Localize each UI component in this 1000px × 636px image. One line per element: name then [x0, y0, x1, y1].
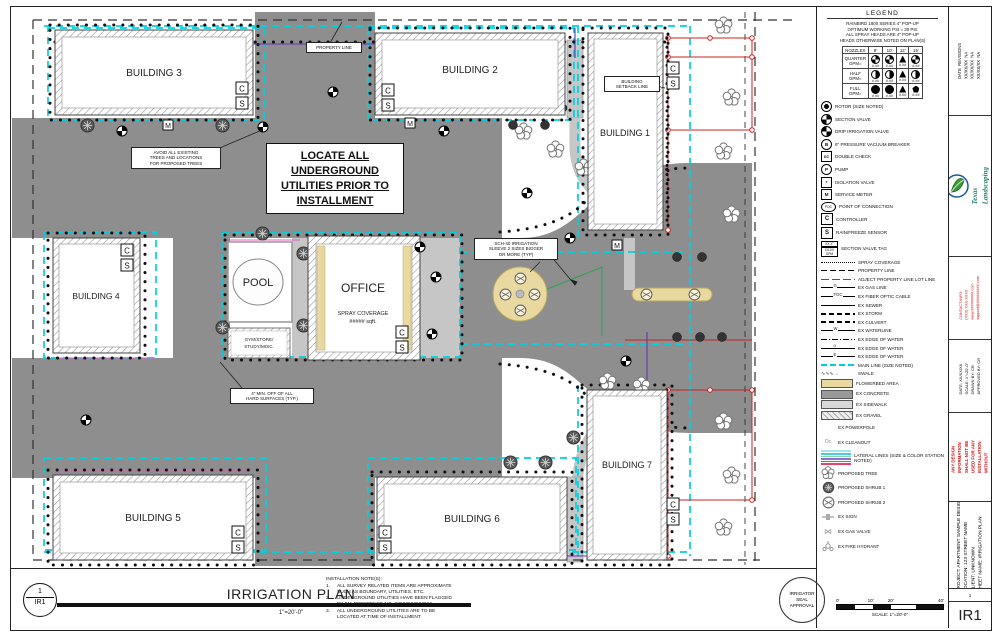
lateral-lines-icon: [821, 450, 851, 465]
legend-misc-row: LATERAL LINES (SIZE & COLOR STATION NOTE…: [821, 450, 944, 465]
legend-area-row: EX CONCRETE: [821, 390, 944, 399]
legend-misc-row: PROPOSED SHRUB 1: [821, 481, 944, 494]
legend-row: SECTION VALVE: [821, 114, 944, 125]
shrub2-icon: [821, 496, 835, 509]
vacuum-breaker-icon: B: [821, 139, 832, 150]
shrub1-icon: [821, 481, 835, 494]
triangle-nozzle-icon: [899, 56, 906, 63]
legend-line-row: GEX GAS LINE: [821, 284, 944, 291]
locate-utilities-note: LOCATE ALLUNDERGROUND UTILITIES PRIOR TO…: [266, 143, 404, 214]
title-block-strip: DATE REVISIONS XX/XX/XX NA XX/XX/XX NA X…: [948, 7, 991, 628]
half-nozzle-icon: [885, 70, 894, 79]
quarter-nozzle-icon: [885, 55, 894, 64]
edge-of-water-sample: [821, 337, 855, 342]
sidewalk-swatch: [821, 400, 853, 409]
legend-misc-row: ⋈EX GAS VALVE: [821, 525, 944, 538]
foc-line-sample: FOC: [821, 294, 855, 299]
nozzle-row-half: HALFGPM= #.## #.## #.## #.##: [842, 69, 923, 84]
section-valve-icon: [821, 114, 832, 125]
half-nozzle-icon: [871, 70, 880, 79]
legend-area-row: FLOWERBED AREA: [821, 379, 944, 388]
legend-line-row: SPRAY COVERAGE: [821, 259, 944, 266]
legend-line-row: EX SEWER: [821, 302, 944, 309]
gravel-swatch: [821, 411, 853, 420]
storm-line-sample: [821, 311, 855, 316]
legend-line-row: WEX WATERLINE: [821, 327, 944, 334]
pump-icon: P: [821, 164, 832, 175]
legend-line-row: oEX EDGE OF WATER: [821, 345, 944, 352]
legend-header: RAINBIRD 1800 SERIES 4" POP-UPOPTIMUM WO…: [821, 21, 944, 43]
sheet-small-num: 1: [949, 589, 991, 602]
legend-row: POCPOINT OF CONNECTION: [821, 202, 944, 212]
sheet-number: IR1: [949, 602, 991, 628]
proposed-tree-icon: [821, 467, 835, 480]
company-logo: [949, 173, 970, 199]
legend-line-row: EX EDGE OF WATER: [821, 336, 944, 343]
legend-row: MSERVICE METER: [821, 189, 944, 200]
pentagon-nozzle-icon: [912, 86, 919, 93]
legend-line-row: EX STORM: [821, 310, 944, 317]
double-check-icon: DC: [821, 151, 832, 162]
avoid-trees-callout: AVOID ALL EXISTINGTREES AND LOCATIONSFOR…: [131, 147, 221, 169]
scale-bar-blocks: [836, 604, 944, 610]
poc-icon: POC: [821, 202, 836, 212]
detail-bubble: 1 IR1: [23, 583, 57, 617]
legend-row: *ISOLATION VALVE: [821, 177, 944, 188]
legend-misc-row: OcEX CLEANOUT: [821, 436, 944, 449]
legend-row: PPUMP: [821, 164, 944, 175]
edge-of-water-sample-2: o: [821, 346, 855, 351]
legend-line-row: MAIN LINE (SIZE NOTED): [821, 362, 944, 369]
property-line-sample: [821, 268, 855, 273]
legend-row: CCONTROLLER: [821, 213, 944, 225]
triangle-nozzle-icon: [899, 86, 906, 93]
legend-line-row: EX CULVERT: [821, 319, 944, 326]
triangle-nozzle-icon: [899, 71, 906, 78]
irrigator-seal: IRRIGATORSEALAPPROVAL: [779, 577, 825, 623]
concrete-swatch: [821, 390, 853, 399]
half-nozzle-icon: [911, 70, 920, 79]
disclaimer-block: PRELIMINARY: ANY DESIGN INFORMATION SHAL…: [949, 413, 991, 502]
sheet-meta-block: DATE: XX/XX/XX SCALE: 1"=20'-0" DRAWN BY…: [949, 340, 991, 413]
legend-title: LEGEND: [827, 10, 938, 19]
sewer-line-sample: [821, 303, 855, 308]
controller-icon: C: [821, 213, 833, 225]
legend-misc-row: EX POWERPOLE: [821, 421, 944, 434]
project-info-block: PROJECT: APARTMENT SAMPLE DESIGN LOCATIO…: [949, 502, 991, 589]
edge-of-water-sample-3: E: [821, 354, 855, 359]
legend-row: DCDOUBLE CHECK: [821, 151, 944, 162]
legend-misc-row: PROPOSED TREE: [821, 467, 944, 480]
cleanout-icon: Oc: [821, 436, 835, 449]
fire-hydrant-icon: [821, 540, 835, 553]
legend-line-row: ∿∿∿→SWALE: [821, 370, 944, 377]
sleeve-callout: SCH-40 IRRIGATIONSLEEVE 2 SIZES BIGGEROR…: [474, 238, 558, 260]
legend-line-row: PROPERTY LINE: [821, 267, 944, 274]
legend-row: SRAIN/FREEZE SENSOR: [821, 227, 944, 239]
waterline-sample: W: [821, 328, 855, 333]
legend-row: DRIP IRRIGATION VALVE: [821, 126, 944, 137]
flowerbed-swatch: [821, 379, 853, 388]
legend-line-row: EEX EDGE OF WATER: [821, 353, 944, 360]
nozzle-table: NOZZLES8' 10'12' 15' QUARTERGPM= #.## #.…: [842, 46, 924, 99]
drip-valve-icon: [821, 126, 832, 137]
legend-row: ROTOR (SIZE NOTED): [821, 101, 944, 112]
full-nozzle-icon: [871, 85, 880, 94]
nozzle-row-full: FULLGPM= #.## #.## #.## #.##: [842, 84, 923, 99]
legend-area-row: EX SIDEWALK: [821, 400, 944, 409]
quarter-nozzle-icon: [911, 55, 920, 64]
gas-line-sample: G: [821, 285, 855, 290]
lot-line-sample: [821, 277, 855, 282]
service-meter-icon: M: [821, 189, 832, 200]
company-logo-block: Copyright © Texas Landscaping Resources …: [949, 116, 991, 257]
powerpole-icon: [821, 421, 835, 434]
legend-row: XX X"XX.XX GPMSECTION VALVE TAG: [821, 241, 944, 257]
spray-coverage-line: [821, 260, 855, 265]
culvert-line-sample: [821, 320, 855, 325]
rotor-icon: [821, 101, 832, 112]
valve-tag-icon: XX X"XX.XX GPM: [821, 241, 838, 257]
full-nozzle-icon: [885, 85, 894, 94]
legend-line-row: ADJECT PROPERTY LINE LOT LINE: [821, 276, 944, 283]
legend-area-row: EX GRAVEL: [821, 411, 944, 420]
sign-icon: [821, 510, 835, 523]
contact-info-block: CONTACT INFO: (XXX) XXX-XXXX www.#######…: [949, 257, 991, 340]
hard-surfaces-callout: 4" MIN. OFF OF ALLHARD SURFACES (TYP.): [230, 388, 314, 404]
scale-bar: 0'10' 20'40' SCALE: 1"=20'-0": [836, 598, 944, 617]
legend-row: B6" PRESSURE VACUUM BREAKER: [821, 139, 944, 150]
isolation-valve-icon: *: [821, 177, 832, 188]
nozzle-row-quarter: QUARTERGPM= #.## #.## #.## #.##: [842, 54, 923, 69]
legend-misc-row: EX FIRE HYDRANT: [821, 540, 944, 553]
legend-line-row: FOCEX FIBER OPTIC CABLE: [821, 293, 944, 300]
legend-misc-row: EX SIGN: [821, 510, 944, 523]
quarter-nozzle-icon: [871, 55, 880, 64]
gas-valve-icon: ⋈: [821, 525, 835, 538]
revisions-table: DATE REVISIONS XX/XX/XX NA XX/XX/XX NA X…: [949, 7, 991, 116]
rain-freeze-sensor-icon: S: [821, 227, 833, 239]
setback-callout: BUILDINGSETBACK LINE: [604, 76, 660, 92]
property-line-callout: PROPERTY LINE: [306, 42, 362, 53]
swale-sample: ∿∿∿→: [821, 371, 855, 376]
legend-misc-row: PROPOSED SHRUB 2: [821, 496, 944, 509]
main-line-sample: [821, 363, 855, 368]
installation-notes: INSTALLATION NOTE(S): 1.ALL SURVEY RELAT…: [326, 577, 516, 621]
footer-bar: 1 IR1 IRRIGATION PLAN 1"=20'-0" INSTALLA…: [11, 568, 816, 630]
legend-panel: LEGEND RAINBIRD 1800 SERIES 4" POP-UPOPT…: [816, 7, 946, 628]
